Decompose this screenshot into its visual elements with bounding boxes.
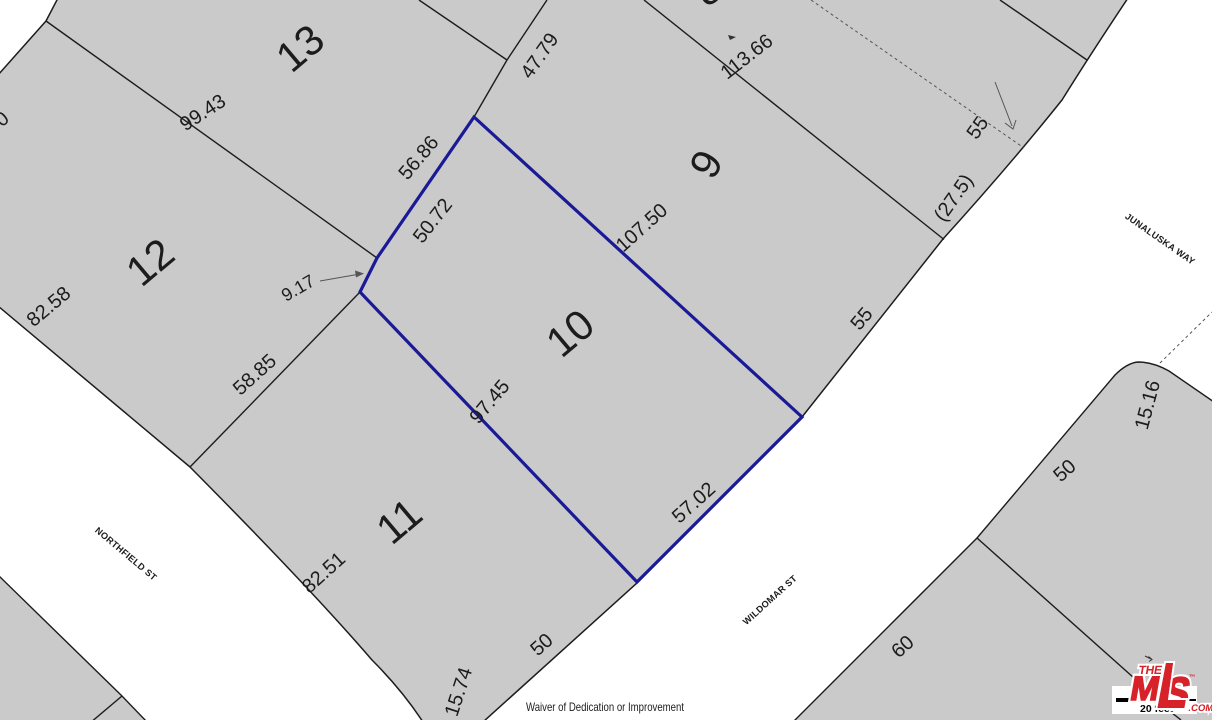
svg-text:™: ™ bbox=[1189, 674, 1196, 681]
svg-text:Waiver of Dedication or Improv: Waiver of Dedication or Improvement bbox=[526, 700, 685, 714]
svg-text:.COM: .COM bbox=[1187, 703, 1212, 714]
svg-text:THE: THE bbox=[1137, 663, 1163, 677]
